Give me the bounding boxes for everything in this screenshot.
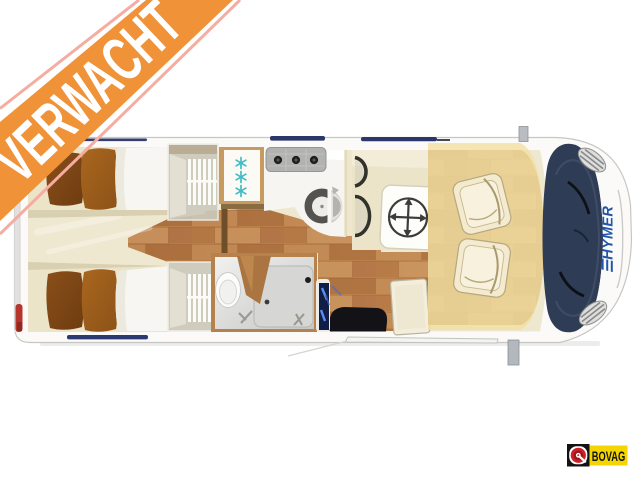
svg-text:☰HYMER: ☰HYMER [601,206,617,273]
svg-text:BOVAG: BOVAG [592,448,626,464]
